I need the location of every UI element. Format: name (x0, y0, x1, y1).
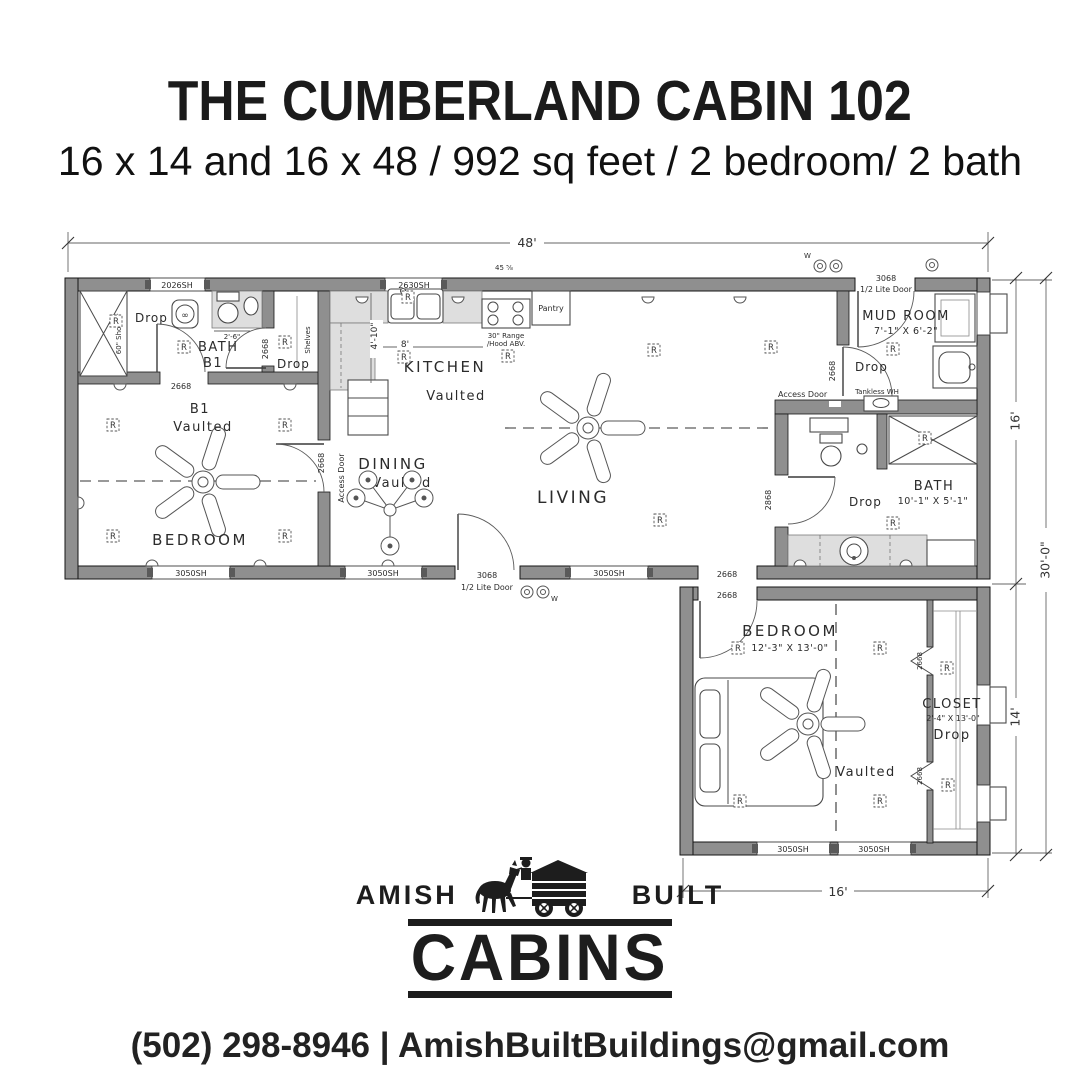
storage-box (348, 380, 388, 435)
dim-label: 4'-10" (370, 322, 380, 349)
door-label: 2868 (764, 490, 773, 510)
logo-amish: AMISH (356, 880, 458, 918)
svg-text:R: R (945, 781, 951, 791)
room-label: LIVING (537, 488, 609, 508)
room-label: CLOSET (922, 697, 982, 712)
room-label: KITCHEN (404, 358, 487, 376)
room-label: B1 (190, 402, 210, 417)
kitchen: 30" Range /Hood ABV. Pantry 4'-10" 8' KI… (330, 289, 570, 436)
tankless-heater (864, 396, 898, 411)
room-size: 10'-1" X 5'-1" (898, 496, 969, 507)
kitchen-sink (388, 289, 443, 324)
door-label: 3068 (876, 274, 896, 283)
range (482, 299, 530, 328)
svg-text:R: R (113, 317, 119, 327)
drop-label: Drop (933, 728, 970, 743)
tankless-label: Tankless WH (854, 388, 899, 396)
svg-text:R: R (282, 532, 288, 542)
tp-holder (857, 444, 867, 454)
svg-text:R: R (944, 664, 950, 674)
dim-right-lower: 14' (1008, 707, 1023, 726)
linen-closet: Shelves Drop (277, 296, 312, 371)
dim-top: 48' (517, 235, 536, 250)
w-label: W (551, 595, 558, 603)
shelf (810, 418, 848, 432)
svg-text:R: R (922, 434, 928, 444)
shower-2 (889, 416, 977, 464)
logo-built: BUILT (632, 880, 724, 918)
svg-text:R: R (505, 352, 511, 362)
range-label: 30" Range (488, 332, 525, 340)
svg-text:R: R (401, 353, 407, 363)
toilet-b1 (217, 292, 239, 323)
door-label: 2668 (717, 570, 737, 579)
svg-text:R: R (110, 421, 116, 431)
ceiling-fan-icon (538, 372, 645, 485)
room-label: B1 (203, 356, 223, 371)
vanity-2 (788, 535, 975, 566)
door-label: 2668 (261, 339, 270, 359)
drop-label: Drop (277, 357, 310, 371)
room-label: BEDROOM (152, 531, 248, 549)
window-label: 3050SH (858, 845, 889, 854)
cabin-flyer: THE CUMBERLAND CABIN 102 16 x 14 and 16 … (0, 0, 1080, 1080)
toilet-2 (820, 434, 842, 466)
window-label: 3050SH (367, 569, 398, 578)
room-label: BEDROOM (742, 622, 838, 640)
shelves-label: Shelves (304, 326, 312, 354)
utility-sink (933, 346, 977, 388)
door-label: 2668 (828, 361, 837, 381)
room-label: Vaulted (426, 389, 486, 404)
w-label: W (804, 252, 811, 260)
pantry-label: Pantry (538, 304, 564, 313)
svg-text:R: R (877, 797, 883, 807)
logo-cabins: CABINS (411, 924, 668, 990)
bed (695, 678, 823, 806)
window-label: 3050SH (593, 569, 624, 578)
door-label: 2668 (916, 767, 924, 785)
access-door-label: Access Door (337, 453, 346, 503)
door-label: 1/2 Lite Door (461, 583, 514, 592)
contact-info: (502) 298-8946 | AmishBuiltBuildings@gma… (0, 1026, 1080, 1066)
svg-text:R: R (768, 343, 774, 353)
svg-text:R: R (405, 293, 411, 303)
window-label: 3050SH (175, 569, 206, 578)
living: LIVING (505, 372, 772, 508)
svg-text:R: R (735, 644, 741, 654)
window-label: 2026SH (161, 281, 192, 290)
drop-label: Drop (849, 495, 882, 509)
svg-text:R: R (737, 797, 743, 807)
room-size: 2'-4" X 13'-0" (926, 714, 980, 723)
exhaust-fan-icon: ∞ (172, 300, 198, 328)
svg-text:R: R (877, 644, 883, 654)
door-label: 1/2 Lite Door (860, 285, 913, 294)
door-label: 2668 (171, 382, 191, 391)
room-label: BATH (198, 340, 239, 355)
dim-tiny: 45 ⅝ (495, 264, 513, 272)
drop-label: Drop (135, 311, 168, 325)
svg-text:R: R (110, 532, 116, 542)
ceiling-fan-icon (153, 426, 260, 539)
dining: DINING Vaulted (347, 455, 433, 555)
brand-logo: AMISH (0, 858, 1080, 998)
dim-label: 8' (401, 340, 409, 350)
bath1: 60" Shower ∞ 2'-6" Drop BATH B1 (80, 291, 262, 376)
svg-text:R: R (282, 338, 288, 348)
room-label: Vaulted (173, 420, 233, 435)
door-label: 2668 (916, 652, 924, 670)
door-label: 2668 (717, 591, 737, 600)
access-door-label: Access Door (778, 390, 828, 399)
svg-text:R: R (181, 343, 187, 353)
mudroom: MUD ROOM 7'-1" X 6'-2" Drop Tankless WH (854, 294, 977, 411)
svg-text:∞: ∞ (181, 311, 189, 321)
room-size: 12'-3" X 13'-0" (751, 643, 828, 654)
door-label: 2668 (317, 453, 326, 473)
svg-text:R: R (890, 345, 896, 355)
dim-right-overall: 30'-0" (1038, 541, 1053, 579)
svg-text:R: R (282, 421, 288, 431)
room-label: Vaulted (836, 765, 896, 780)
room-label: BATH (914, 479, 955, 494)
window-label: 3050SH (777, 845, 808, 854)
door-label: 3068 (477, 571, 497, 580)
dim-right-upper: 16' (1008, 411, 1023, 430)
svg-text:R: R (651, 346, 657, 356)
room-label: MUD ROOM (862, 309, 950, 324)
drop-label: Drop (855, 360, 888, 374)
access-panel (829, 401, 841, 407)
horse-buggy-icon (466, 856, 624, 918)
range-label2: /Hood ABV. (487, 340, 525, 348)
room-label: DINING (358, 455, 427, 473)
svg-text:R: R (890, 519, 896, 529)
sink-b1 (244, 297, 258, 315)
room-size: 7'-1" X 6'-2" (874, 326, 938, 337)
svg-text:R: R (657, 516, 663, 526)
